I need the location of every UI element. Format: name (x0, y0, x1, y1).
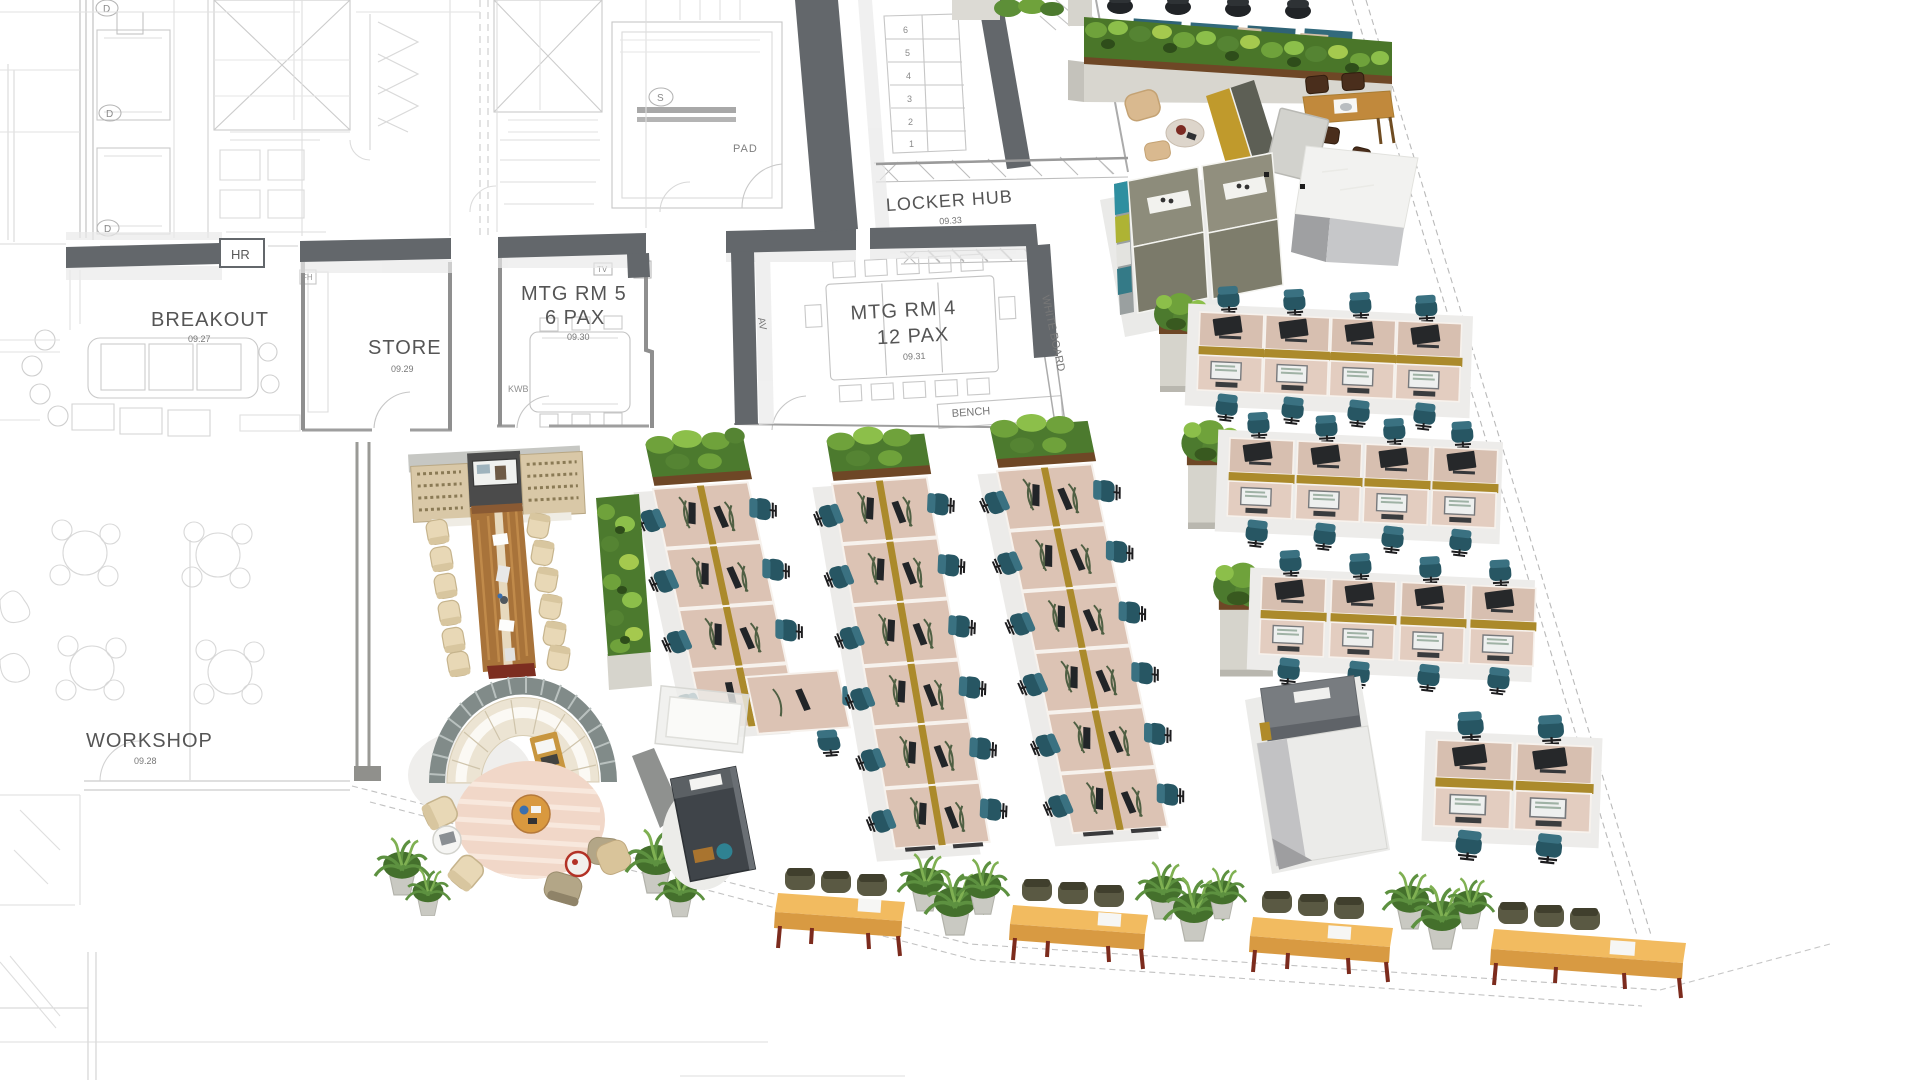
svg-text:PAD: PAD (733, 143, 758, 155)
svg-text:S: S (657, 93, 664, 104)
svg-text:09.33: 09.33 (939, 215, 962, 227)
svg-text:09.27: 09.27 (188, 334, 211, 344)
svg-text:6: 6 (903, 25, 908, 35)
svg-text:4: 4 (906, 71, 911, 81)
svg-text:09.29: 09.29 (391, 364, 414, 374)
svg-text:D: D (106, 109, 113, 120)
svg-text:2: 2 (908, 117, 913, 127)
svg-text:WORKSHOP: WORKSHOP (86, 730, 213, 752)
svg-text:6 PAX: 6 PAX (545, 307, 605, 329)
svg-text:09.30: 09.30 (567, 332, 590, 342)
svg-text:KWB: KWB (508, 384, 529, 394)
svg-text:1: 1 (909, 139, 914, 149)
svg-text:HR: HR (231, 247, 250, 262)
svg-text:09.28: 09.28 (134, 756, 157, 766)
svg-text:STORE: STORE (368, 337, 442, 359)
svg-text:5: 5 (905, 48, 910, 58)
svg-text:3: 3 (907, 94, 912, 104)
svg-text:AV: AV (755, 317, 768, 332)
svg-text:D: D (103, 4, 110, 15)
svg-text:09.31: 09.31 (903, 351, 926, 362)
svg-text:12 PAX: 12 PAX (876, 323, 949, 349)
svg-text:MTG RM 5: MTG RM 5 (521, 283, 627, 305)
svg-text:BREAKOUT: BREAKOUT (151, 309, 269, 331)
